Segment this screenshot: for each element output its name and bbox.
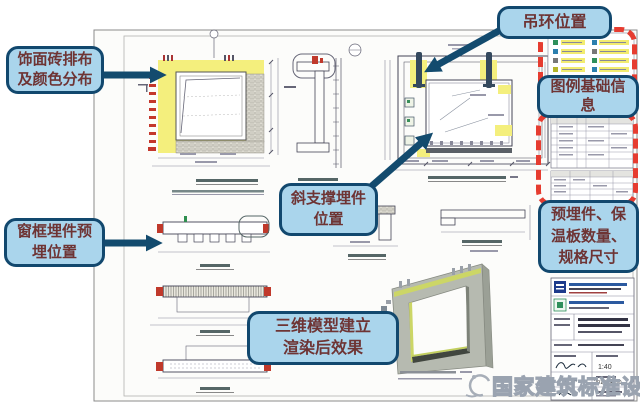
callout-window-frame-embed: 窗框埋件预 埋位置 <box>4 218 105 267</box>
embed-marker-red <box>312 56 318 64</box>
callout-facing-brick: 饰面砖排布 及颜色分布 <box>6 46 104 94</box>
callout-diagonal-support: 斜支撑埋件 位置 <box>279 183 378 236</box>
quantity-highlight-box <box>536 111 638 207</box>
callout-model-render: 三维模型建立 渲染后效果 <box>247 311 399 365</box>
callout-legend-info: 图例基础信 息 <box>537 75 639 118</box>
callout-lifting-ring: 吊环位置 <box>497 6 612 39</box>
watermark-text: 国家建筑标准设计 <box>492 371 640 401</box>
company-logo-blue <box>554 281 566 293</box>
callout-embed-quantity: 预埋件、保 温板数量、 规格尺寸 <box>538 200 639 273</box>
company-logo-green <box>554 299 566 311</box>
elevation-rear-view <box>385 44 550 182</box>
scale-value: 1:40 <box>598 364 612 371</box>
annotated-cad-screenshot: 1:40 2013.04.30 饰面砖排布 <box>0 0 640 410</box>
